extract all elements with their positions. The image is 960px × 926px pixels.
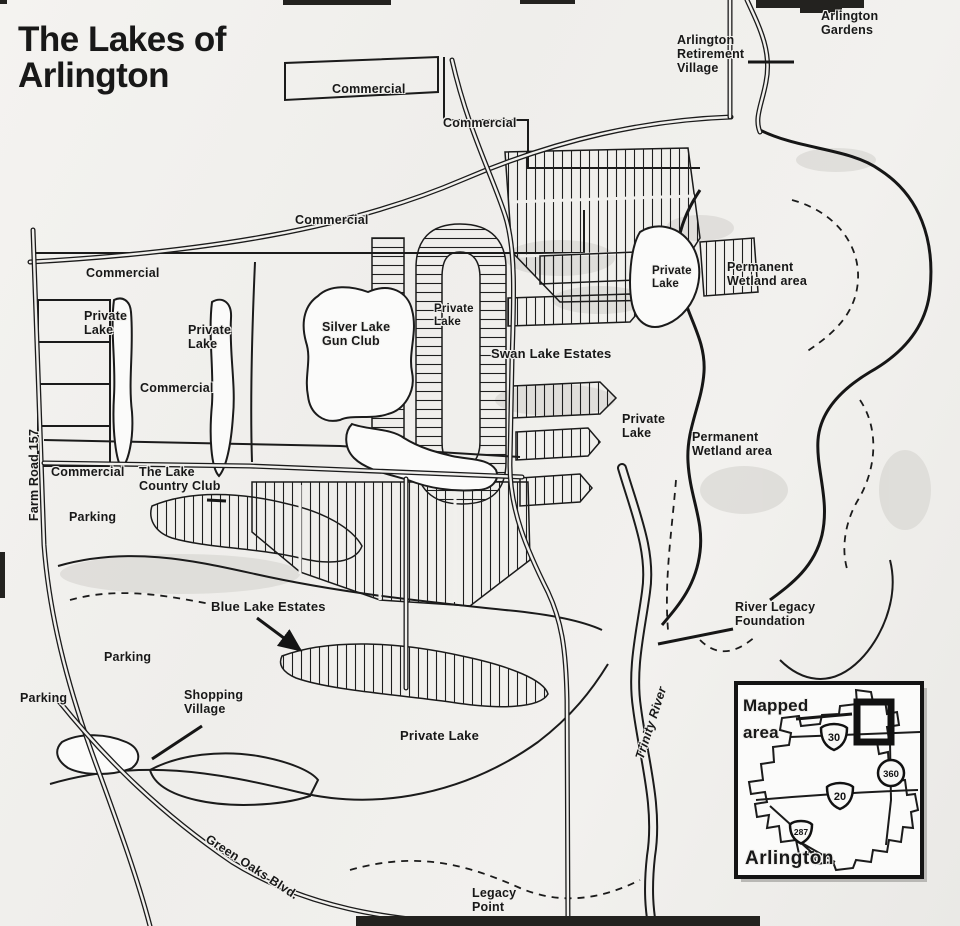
svg-text:360: 360 (883, 769, 899, 780)
label-shopping-village: Shopping Village (184, 688, 243, 716)
label-arlington-retirement-village: Arlington Retirement Village (677, 33, 744, 75)
label-arlington-gardens: Arlington Gardens (821, 9, 878, 37)
label-swan-lake-estates: Swan Lake Estates (491, 347, 611, 362)
label-private-lake-west-1: Private Lake (84, 309, 127, 337)
label-blue-lake-estates: Blue Lake Estates (211, 600, 326, 615)
label-parking-2: Parking (104, 650, 151, 664)
callout-lines (152, 62, 794, 759)
label-private-lake-east: Private Lake (622, 412, 665, 440)
label-legacy-point: Legacy Point (472, 886, 516, 914)
inset-mapped-area-label: Mapped area (743, 692, 808, 746)
inset-city-label: Arlington (745, 848, 834, 869)
label-private-lake-northeast: Private Lake (652, 265, 692, 291)
map-canvas: 30 360 20 287 The Lak (0, 0, 960, 926)
map-title: The Lakes of Arlington (18, 22, 226, 95)
label-parking-3: Parking (20, 691, 67, 705)
label-commercial-west: Commercial (86, 266, 160, 280)
map-linework: 30 360 20 287 (0, 0, 960, 926)
label-silver-lake-gun-club: Silver Lake Gun Club (322, 320, 390, 348)
label-private-lake-west-2: Private Lake (188, 323, 231, 351)
highway-shield-360: 360 (878, 760, 904, 786)
label-permanent-wetland-south: Permanent Wetland area (692, 430, 772, 458)
label-commercial-southwest: Commercial (51, 465, 125, 479)
label-lake-country-club: The Lake Country Club (139, 465, 221, 493)
label-commercial-west-2: Commercial (140, 381, 214, 395)
svg-text:287: 287 (794, 827, 808, 837)
label-commercial-top-left: Commercial (332, 82, 406, 96)
label-farm-road-157: Farm Road 157 (27, 405, 41, 545)
label-commercial-top-right: Commercial (443, 116, 517, 130)
label-private-lake-south: Private Lake (400, 729, 479, 744)
label-private-lake-center: Private Lake (434, 303, 474, 329)
svg-text:20: 20 (834, 791, 846, 803)
label-permanent-wetland-north: Permanent Wetland area (727, 260, 807, 288)
svg-text:30: 30 (828, 732, 840, 744)
label-parking-1: Parking (69, 510, 116, 524)
label-commercial-mid: Commercial (295, 213, 369, 227)
label-river-legacy-foundation: River Legacy Foundation (735, 600, 815, 628)
